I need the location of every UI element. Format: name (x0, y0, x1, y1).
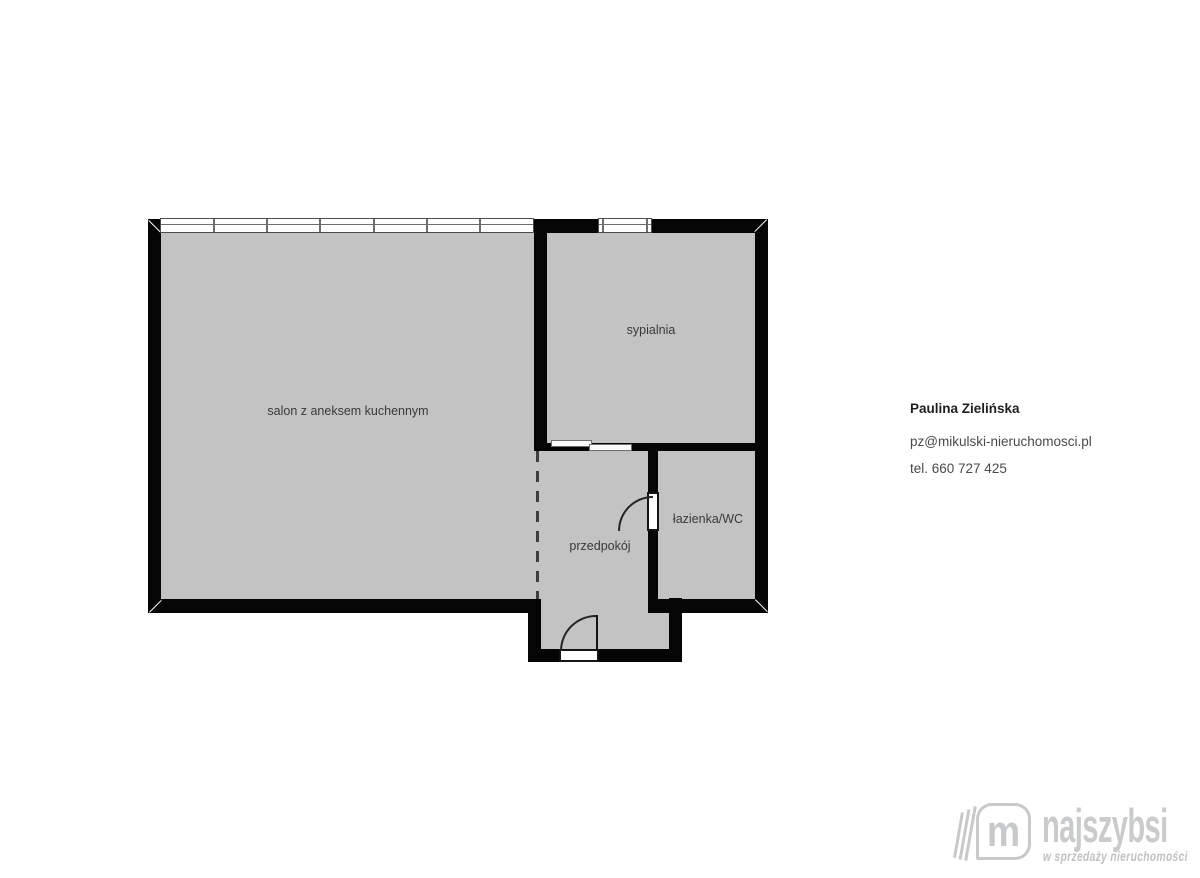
brand-logo: m najszybsi w sprzedaży nieruchomości (955, 800, 1200, 875)
wall-left (148, 219, 161, 613)
agent-email: pz@mikulski-nieruchomosci.pl (910, 434, 1092, 449)
window-mullion (646, 219, 648, 232)
room-label-hall: przedpokój (569, 539, 630, 553)
window-mullion (319, 219, 321, 232)
window-mullion (426, 219, 428, 232)
floor-main (160, 231, 756, 601)
window-bedroom (598, 218, 652, 233)
window-mullion (602, 219, 604, 232)
window-mullion (213, 219, 215, 232)
agent-name: Paulina Zielińska (910, 401, 1020, 416)
wall-extension-bottom (528, 649, 682, 662)
wall-hall-bathroom-lower (648, 531, 658, 601)
wall-right (755, 219, 768, 613)
window-glass-line (161, 224, 533, 225)
page: { "floorplan": { "wall_color": "#050505"… (0, 0, 1200, 878)
room-label-bathroom: łazienka/WC (673, 512, 743, 526)
logo-tagline-text: w sprzedaży nieruchomości (1043, 848, 1188, 864)
wall-bottom-bathroom (648, 599, 768, 613)
room-label-salon: salon z aneksem kuchennym (267, 404, 428, 418)
logo-m-letter: m (987, 810, 1020, 854)
window-glass-line (599, 224, 651, 225)
open-boundary-dashed-line (536, 451, 539, 599)
agent-phone: tel. 660 727 425 (910, 461, 1007, 476)
sliding-door-panel (589, 444, 632, 451)
logo-m-icon: m (976, 803, 1031, 860)
logo-brand-text: najszybsi (1042, 801, 1168, 850)
window-mullion (266, 219, 268, 232)
window-mullion (479, 219, 481, 232)
wall-hall-bathroom-upper (648, 443, 658, 492)
wall-salon-bedroom (534, 219, 547, 451)
sliding-door-panel (551, 440, 592, 447)
window-mullion (373, 219, 375, 232)
window-salon (160, 218, 534, 233)
door-entrance-leaf (596, 615, 598, 651)
room-label-bedroom: sypialnia (627, 323, 676, 337)
wall-bottom-salon (148, 599, 541, 613)
